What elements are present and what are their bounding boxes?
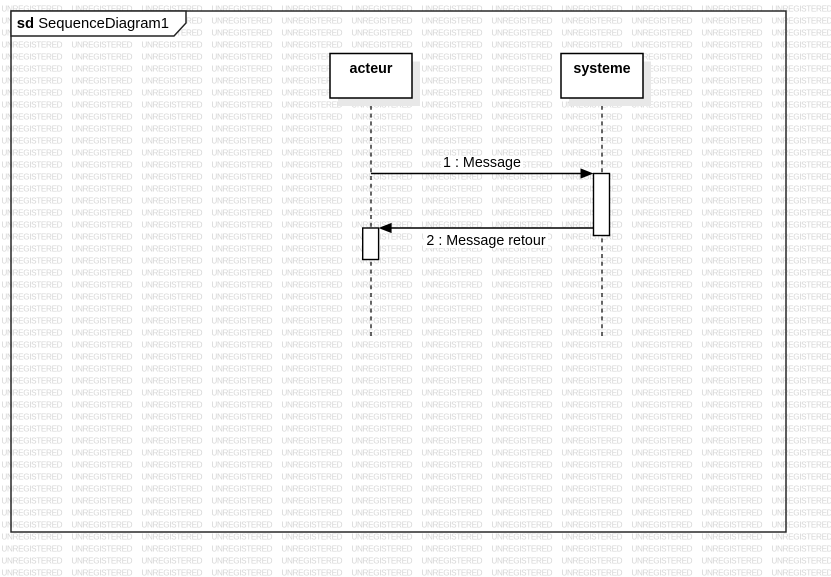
svg-text:2 : Message retour: 2 : Message retour [426,233,545,249]
svg-text:sd SequenceDiagram1: sd SequenceDiagram1 [17,16,169,32]
svg-text:1 : Message: 1 : Message [443,155,521,171]
svg-text:acteur: acteur [350,61,393,77]
svg-text:systeme: systeme [573,61,630,77]
